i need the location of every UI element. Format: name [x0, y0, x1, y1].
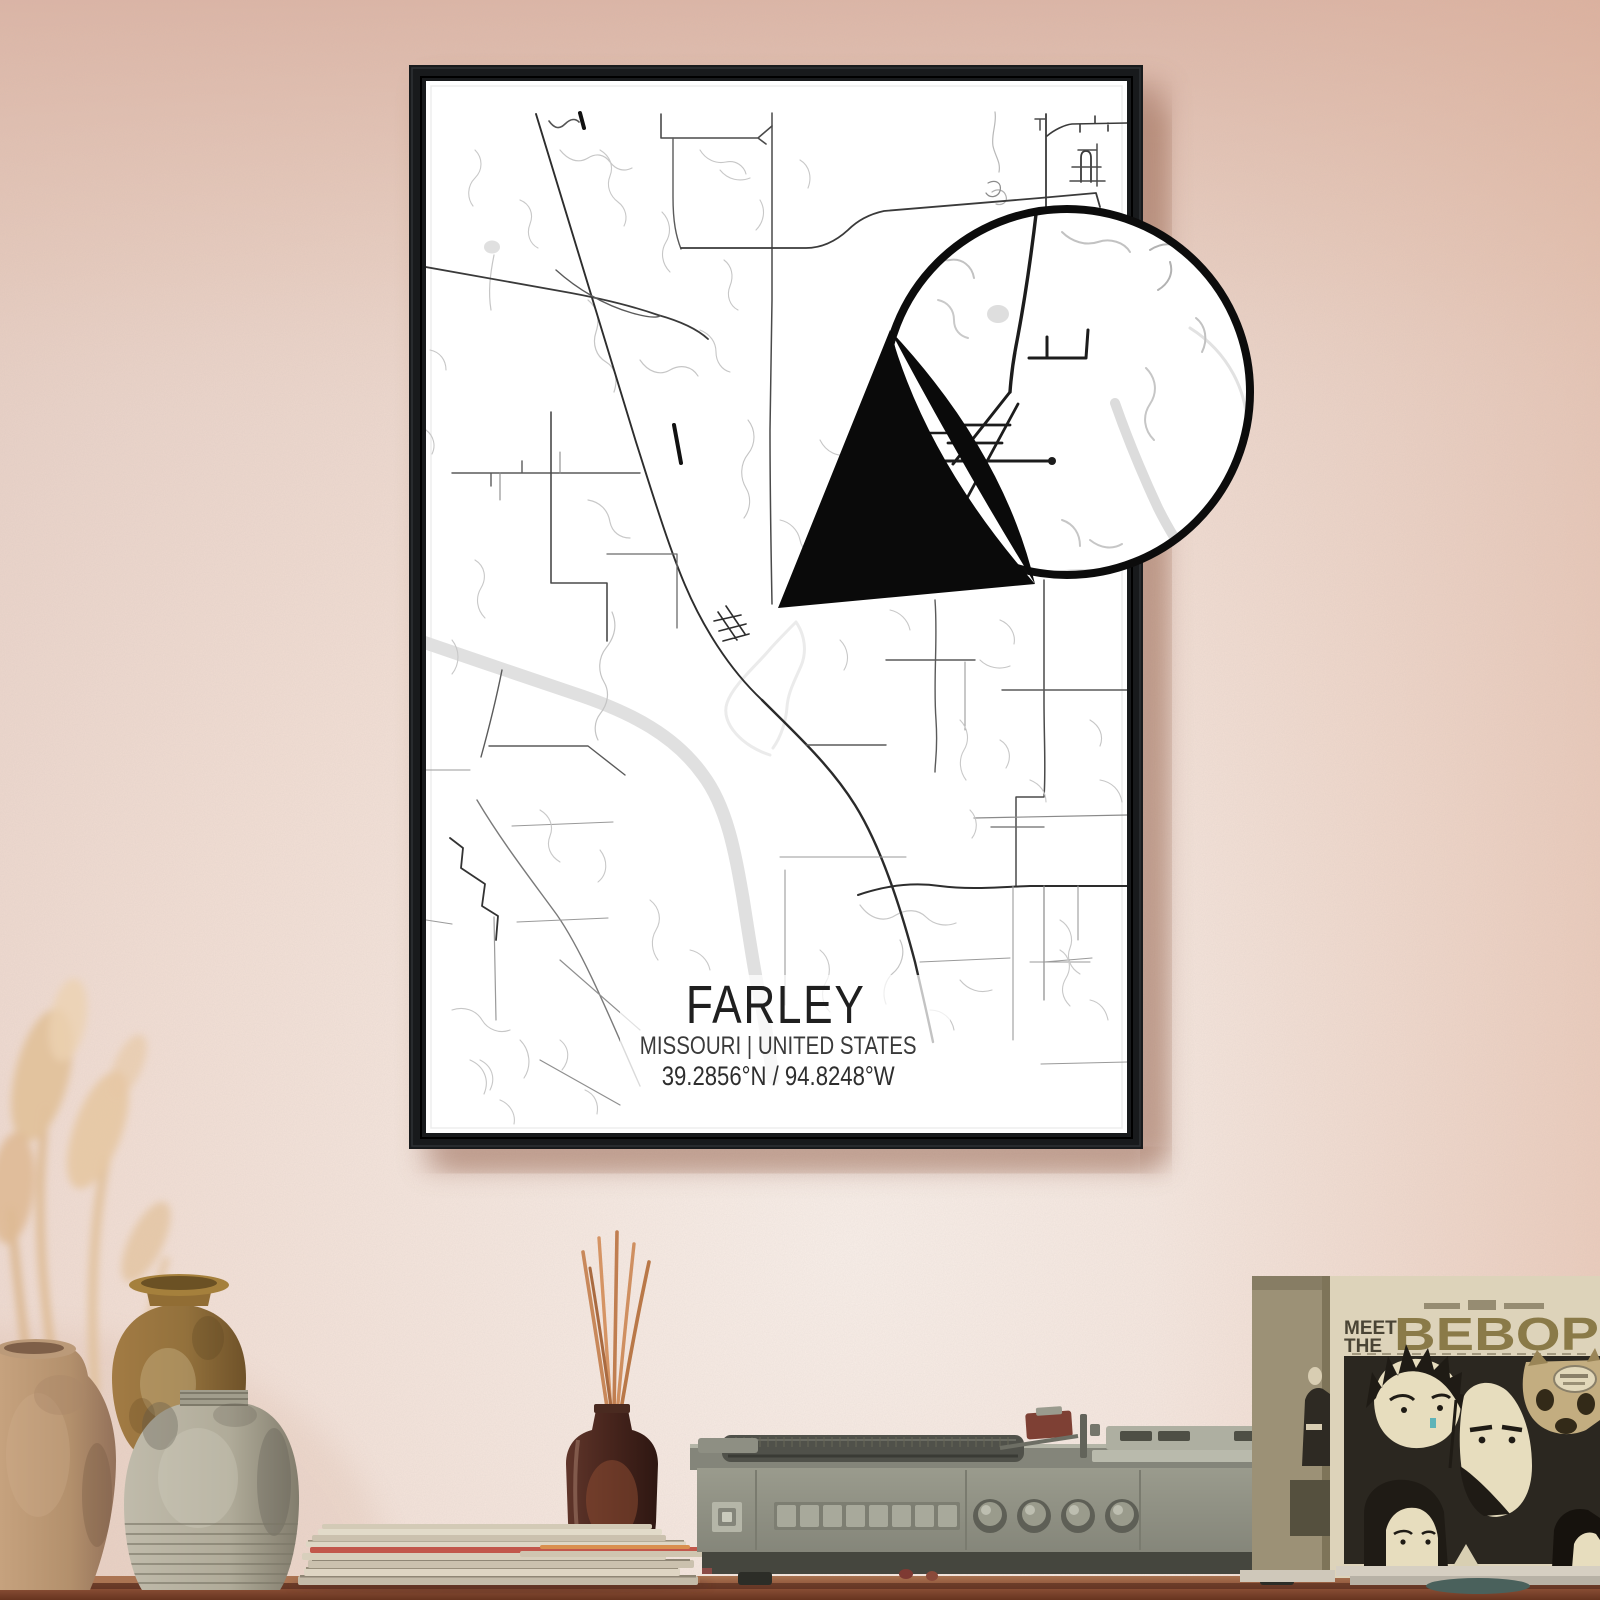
- svg-text:FARLEY: FARLEY: [686, 975, 866, 1035]
- svg-text:THE: THE: [1344, 1336, 1382, 1357]
- svg-text:MISSOURI | UNITED STATES: MISSOURI | UNITED STATES: [640, 1031, 917, 1059]
- svg-text:BEBOP: BEBOP: [1394, 1308, 1599, 1360]
- svg-text:39.2856°N / 94.8248°W: 39.2856°N / 94.8248°W: [662, 1062, 896, 1092]
